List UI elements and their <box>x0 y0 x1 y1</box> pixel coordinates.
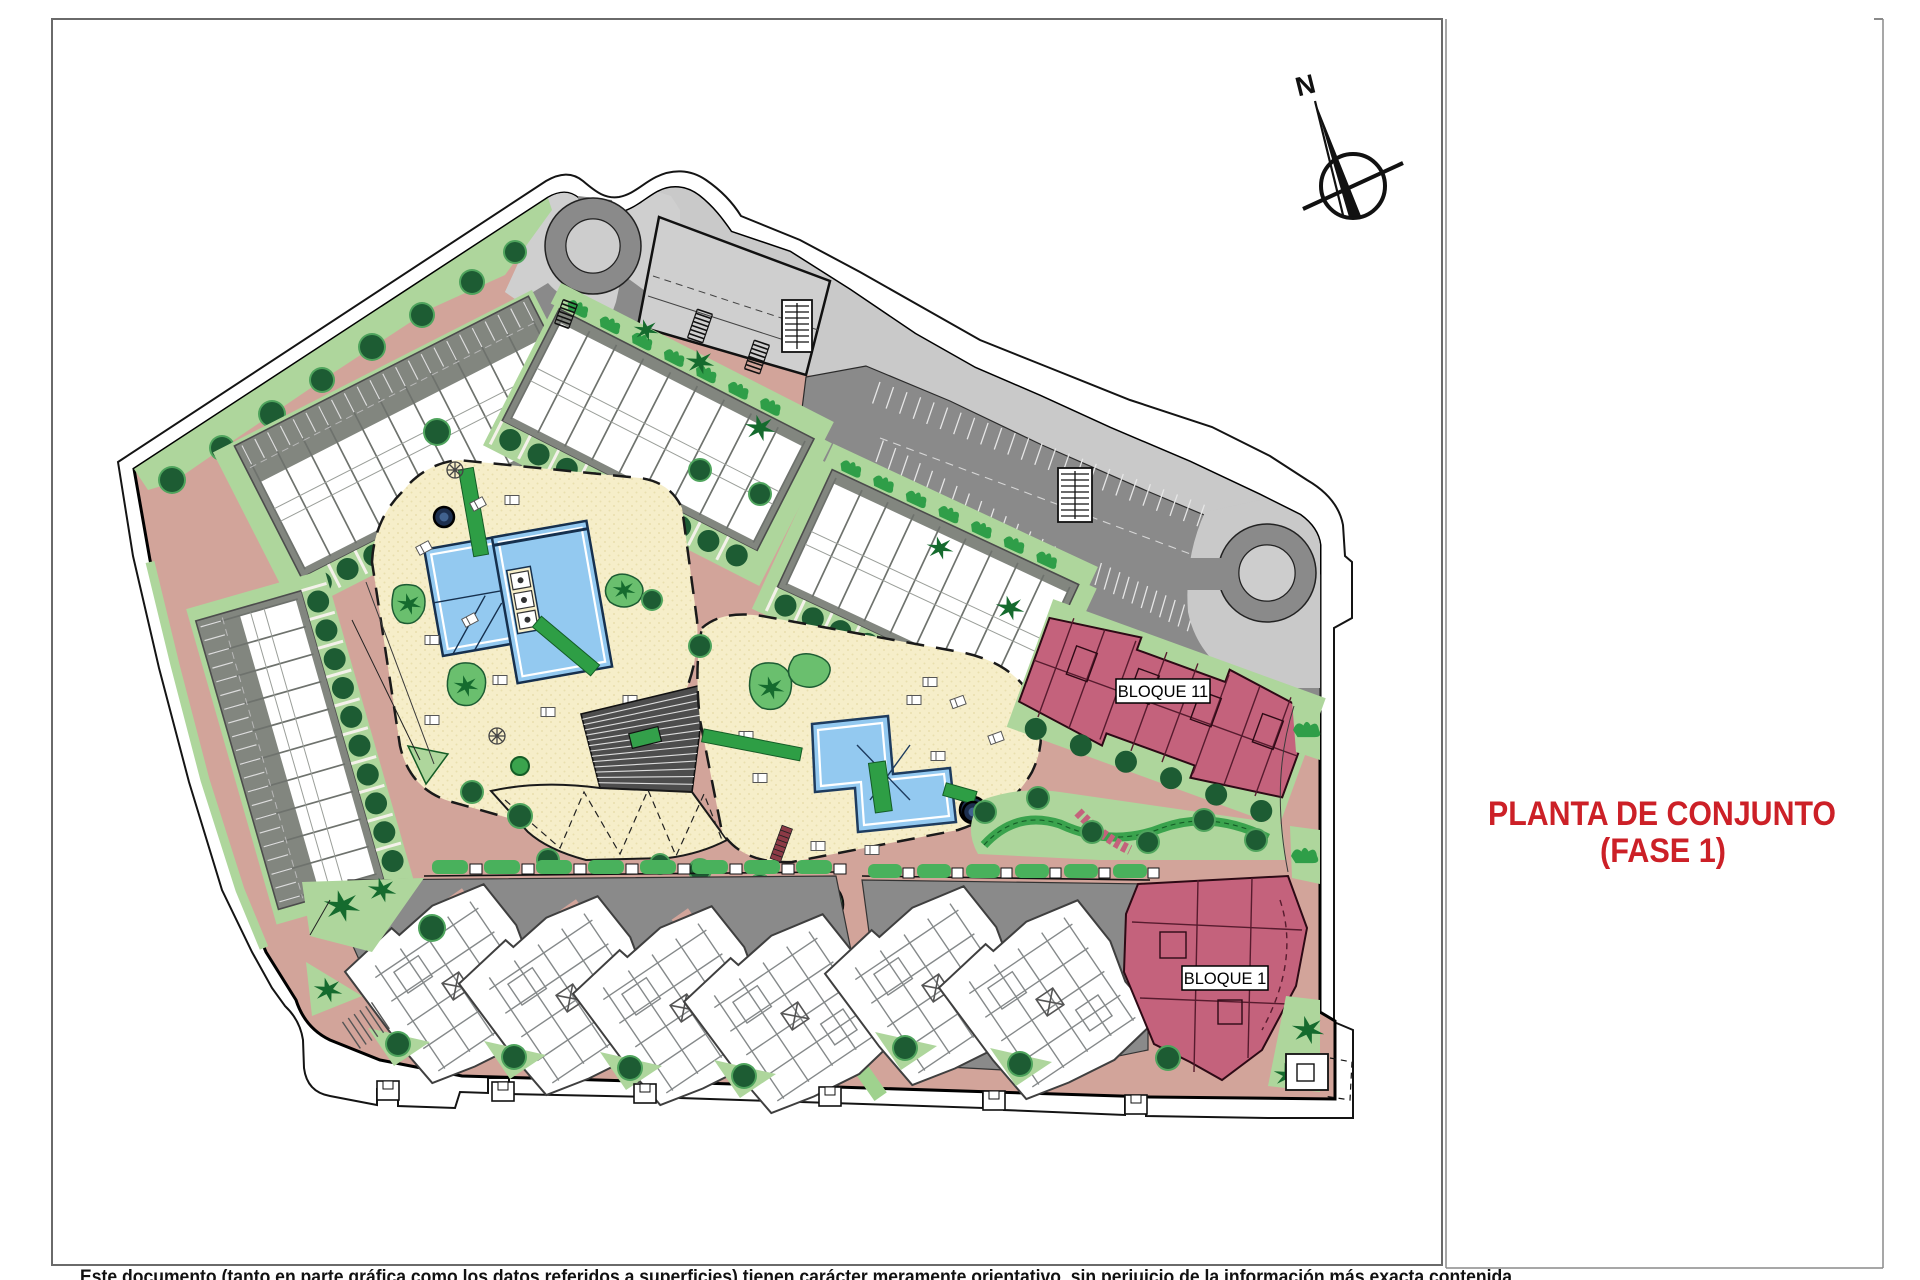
svg-text:BLOQUE 11: BLOQUE 11 <box>1118 683 1208 701</box>
svg-text:Este documento (tanto en parte: Este documento (tanto en parte gráfica c… <box>80 1267 1512 1280</box>
svg-text:(FASE 1): (FASE 1) <box>1600 832 1726 870</box>
svg-text:PLANTA DE CONJUNTO: PLANTA DE CONJUNTO <box>1488 795 1836 833</box>
svg-text:BLOQUE 1: BLOQUE 1 <box>1184 970 1267 988</box>
